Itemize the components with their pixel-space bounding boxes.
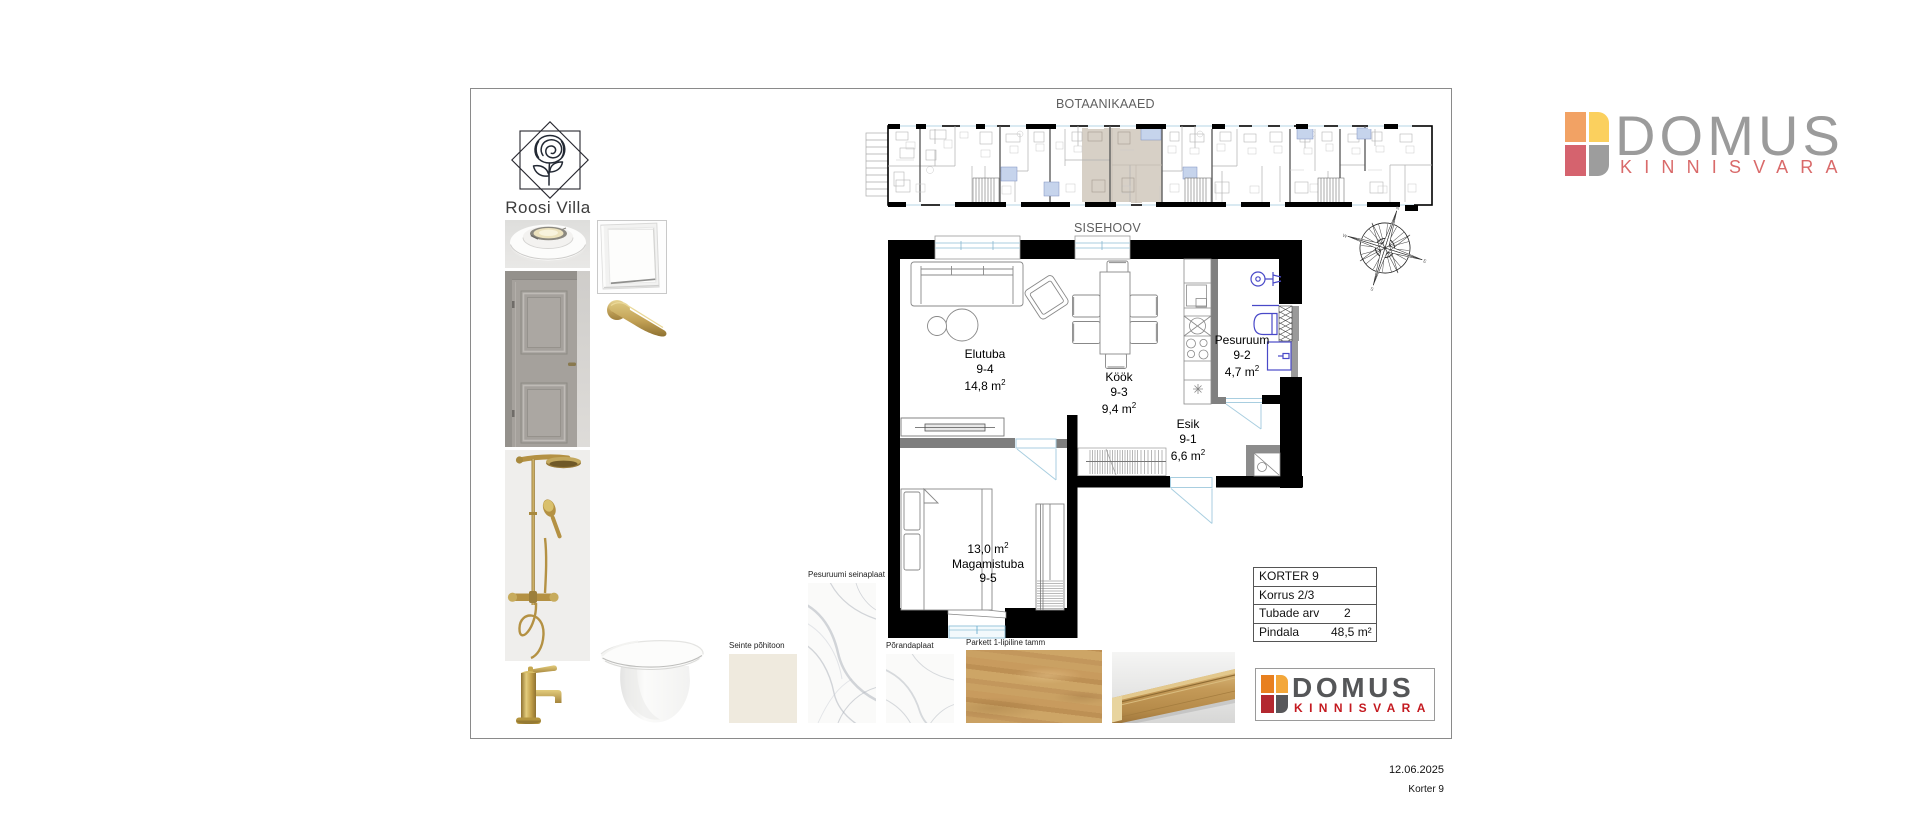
svg-text:S: S (1370, 286, 1374, 292)
svg-text:E: E (1423, 258, 1427, 264)
svg-text:N: N (1395, 205, 1400, 211)
svg-text:W: W (1342, 233, 1348, 239)
